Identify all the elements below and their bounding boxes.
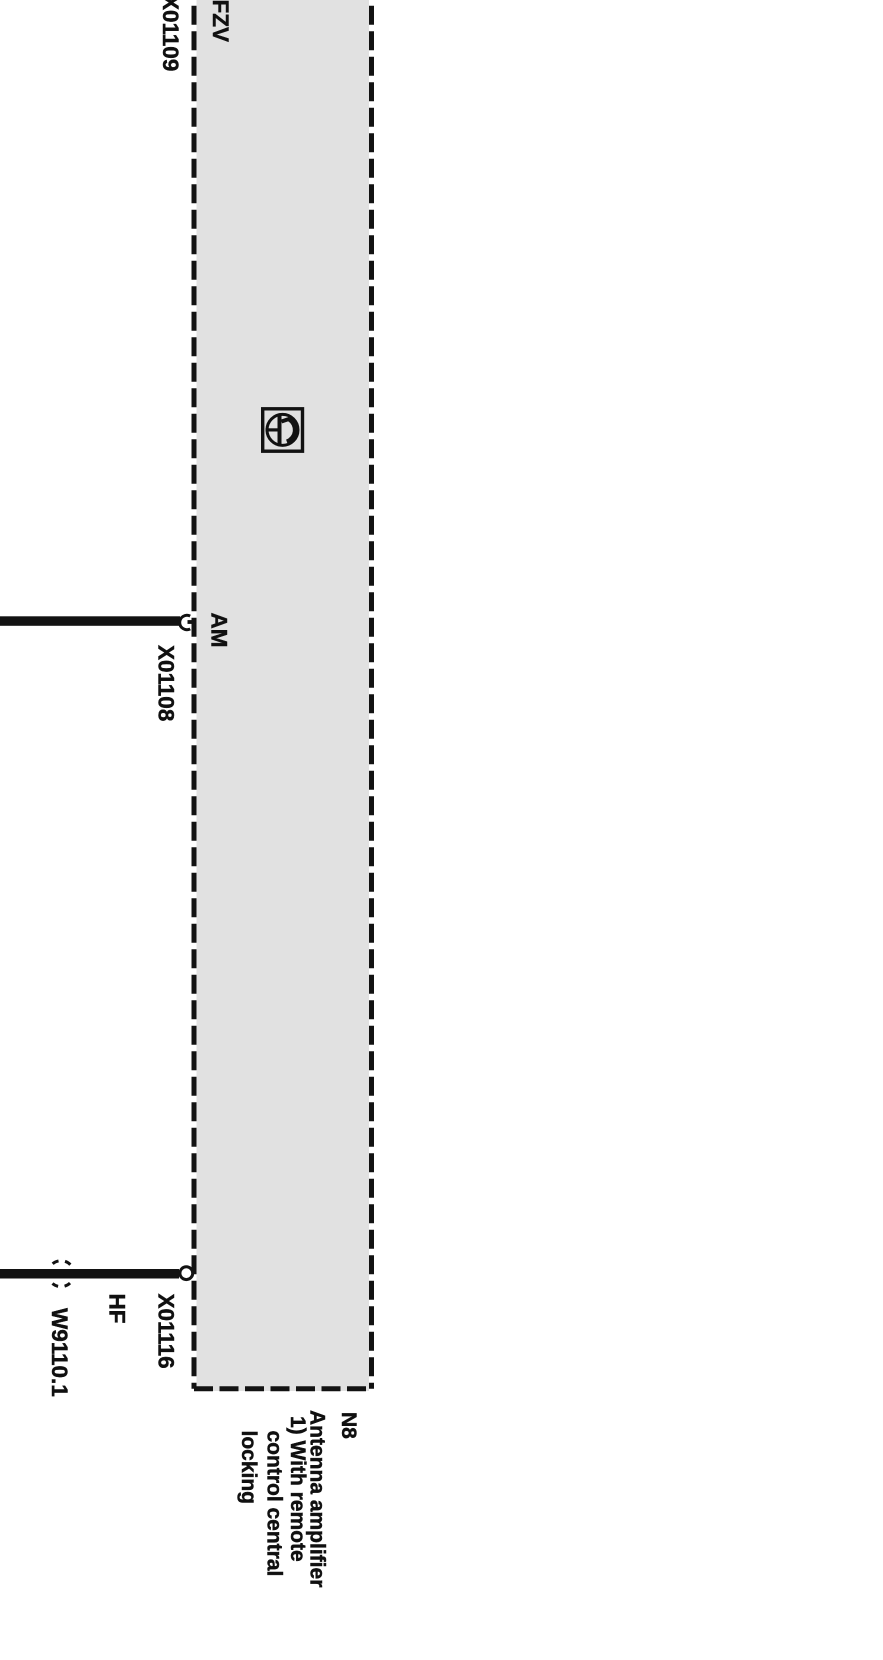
- svg-text:control central: control central: [263, 1431, 286, 1577]
- svg-text:AM: AM: [207, 613, 232, 648]
- svg-text:locking: locking: [237, 1431, 260, 1505]
- svg-text:1) With remote: 1) With remote: [286, 1416, 309, 1562]
- svg-text:FZV: FZV: [208, 0, 233, 42]
- svg-text:X01109: X01109: [158, 0, 183, 71]
- svg-text:HF: HF: [105, 1294, 130, 1324]
- svg-text:X01116: X01116: [154, 1294, 179, 1369]
- svg-text:N8: N8: [337, 1412, 360, 1439]
- svg-text:W9110.1: W9110.1: [47, 1308, 72, 1397]
- svg-text:X01108: X01108: [154, 645, 179, 721]
